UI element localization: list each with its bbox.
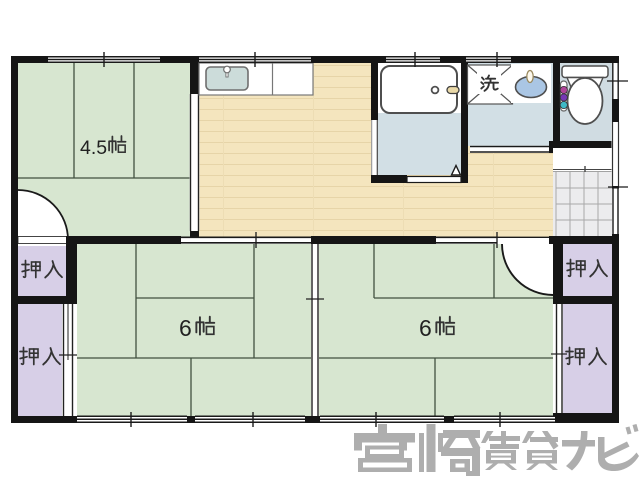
svg-text:6: 6 <box>419 315 432 341</box>
svg-text:6: 6 <box>179 315 192 341</box>
svg-text:4.5: 4.5 <box>80 137 107 159</box>
